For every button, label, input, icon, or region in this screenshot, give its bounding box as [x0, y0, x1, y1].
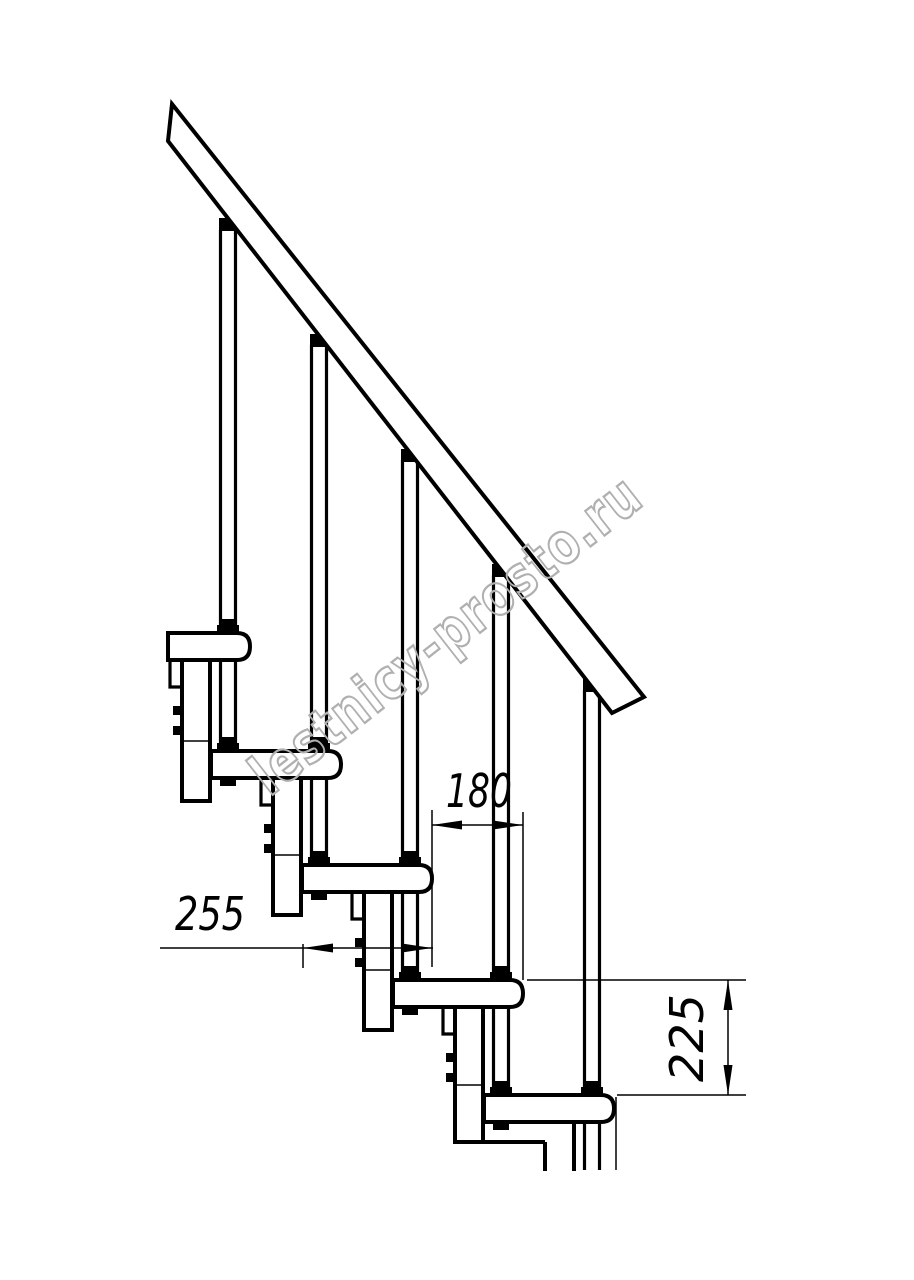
bolt — [264, 844, 275, 853]
baluster-collar — [490, 1087, 512, 1095]
support-module-3 — [352, 892, 392, 1030]
baluster-collar — [399, 972, 421, 980]
support-column — [364, 892, 392, 1030]
bolt — [355, 938, 366, 947]
bolt — [355, 958, 366, 967]
arrowhead-left — [432, 821, 462, 830]
bolt — [173, 726, 184, 735]
baluster-under-nut — [402, 1007, 418, 1015]
support-column — [455, 1007, 483, 1142]
baluster-collar — [217, 743, 239, 751]
tread-4 — [393, 980, 523, 1007]
arrowhead-up — [724, 980, 733, 1010]
arrowhead-left — [303, 944, 333, 953]
baluster-collar — [490, 972, 512, 980]
bolt — [173, 706, 184, 715]
drawing-canvas: 180 255 225 lestnicy-prosto.ru — [0, 0, 914, 1280]
dim-label-step-run: 180 — [446, 764, 512, 818]
baluster-nut — [494, 966, 508, 973]
baluster-nut — [221, 619, 235, 626]
baluster-under-nut — [220, 778, 236, 786]
baluster-nut — [221, 737, 235, 744]
staircase-side-elevation: 180 255 225 lestnicy-prosto.ru — [0, 0, 914, 1280]
baluster-nut — [312, 851, 326, 858]
baluster-nut — [403, 851, 417, 858]
baluster-under-nut — [311, 892, 327, 900]
tread-5 — [484, 1095, 614, 1122]
support-module-1 — [170, 660, 210, 801]
baluster-collar — [308, 857, 330, 865]
baluster-3 — [401, 449, 419, 980]
bolt — [264, 824, 275, 833]
baluster-nut — [585, 1081, 599, 1088]
support-module-4 — [443, 1007, 483, 1142]
baluster-under-nut — [493, 1122, 509, 1130]
handrail — [168, 104, 644, 713]
arrowhead-down — [724, 1065, 733, 1095]
baluster-4 — [492, 564, 510, 1095]
baluster-collar — [581, 1087, 603, 1095]
bolt — [446, 1053, 457, 1062]
dimension-step-rise: 225 — [527, 980, 746, 1170]
baluster-nut — [403, 966, 417, 973]
dim-label-step-rise: 225 — [660, 994, 714, 1082]
bolt — [446, 1073, 457, 1082]
dim-label-tread-depth: 255 — [175, 887, 245, 941]
tread-1 — [168, 633, 250, 660]
baluster-2 — [310, 334, 328, 865]
baluster-1 — [219, 218, 237, 751]
tread-3 — [302, 865, 432, 892]
baluster-collar — [217, 625, 239, 633]
baluster-nut — [494, 1081, 508, 1088]
support-column — [182, 660, 210, 801]
baluster-collar — [399, 857, 421, 865]
